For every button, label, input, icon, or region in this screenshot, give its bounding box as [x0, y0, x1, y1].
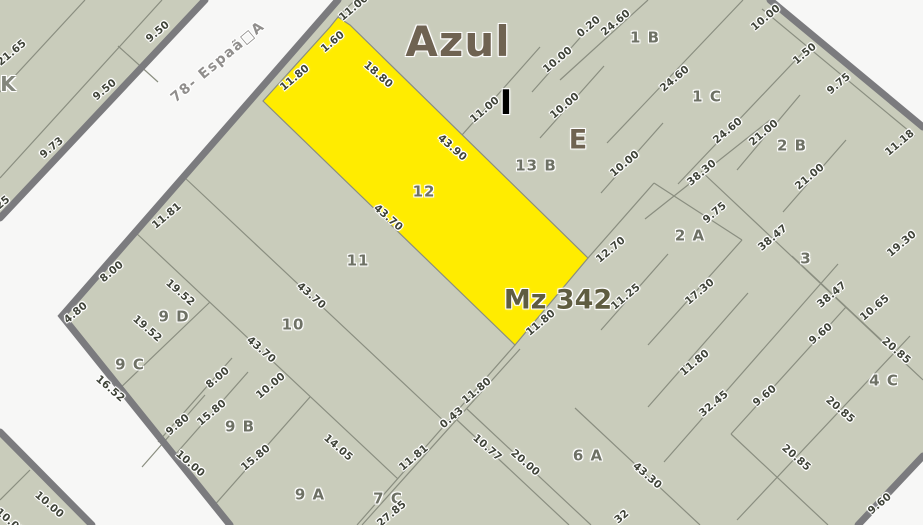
parcel-label-9c: 9 C [115, 358, 145, 373]
parcel-label-4c: 4 C [869, 374, 899, 389]
city-title: Azul [405, 21, 510, 63]
parcel-label-2b: 2 B [777, 139, 807, 154]
parcel-label-1c: 1 C [692, 90, 722, 105]
parcel-label-10: 10 [282, 318, 305, 333]
parcel-label-3: 3 [800, 252, 811, 267]
zone-letter-e: E [569, 127, 587, 154]
parcel-label-2a: 2 A [675, 229, 705, 244]
parcel-label-9d: 9 D [158, 310, 189, 325]
cadastral-map-canvas: Azul Mz 342 78- Espaã□A I E K 12 11 10 9… [0, 0, 923, 525]
block-number: Mz 342 [504, 287, 612, 314]
parcel-label-9a: 9 A [295, 488, 325, 503]
parcel-label-13b: 13 B [515, 159, 557, 174]
zone-letter-k: K [0, 74, 16, 94]
parcel-label-6a: 6 A [573, 449, 603, 464]
parcel-label-12[interactable]: 12 [413, 185, 436, 200]
parcel-label-11: 11 [347, 254, 370, 269]
parcel-label-9b: 9 B [225, 420, 255, 435]
parcel-label-1b: 1 B [630, 31, 660, 46]
